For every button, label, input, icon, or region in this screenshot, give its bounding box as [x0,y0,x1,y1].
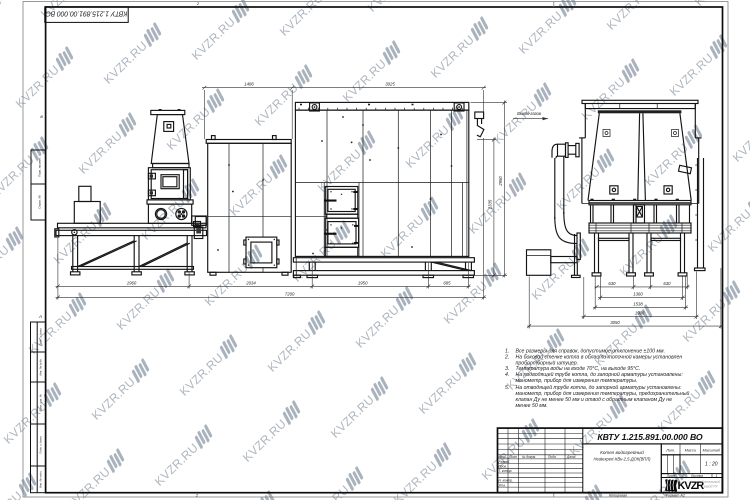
svg-text:манометр, прибор для измерения: манометр, прибор для измерения температу… [516,378,638,384]
svg-text:1538: 1538 [633,301,643,306]
svg-text:630: 630 [608,281,616,286]
svg-text:1906: 1906 [635,311,645,316]
svg-text:3025: 3025 [385,82,395,87]
svg-text:завод РУ: завод РУ [703,485,719,489]
svg-text:№ докум.: № докум. [522,455,536,459]
svg-text:1950: 1950 [358,280,368,285]
svg-text:Справ. №: Справ. № [38,194,42,208]
svg-text:Heatexpert-КВн-2,5-ДОК(ВПЛ): Heatexpert-КВн-2,5-ДОК(ВПЛ) [594,457,652,462]
svg-text:Изм.: Изм. [499,455,506,459]
svg-text:630: 630 [663,281,671,286]
svg-text:Подп.: Подп. [548,455,557,459]
svg-text:5.: 5. [505,385,509,391]
svg-text:Выход газов: Выход газов [517,111,542,116]
svg-text:Подп. и дата: Подп. и дата [39,328,43,346]
svg-text:1 : 20: 1 : 20 [705,462,718,468]
svg-text:Дата: Дата [566,455,576,459]
svg-text:Инв. № подл.: Инв. № подл. [39,470,43,488]
svg-text:1960: 1960 [127,280,137,285]
svg-text:Лист: Лист [508,455,518,459]
svg-text:2950: 2950 [498,176,503,187]
svg-text:1486: 1486 [244,82,254,87]
svg-text:Утв.: Утв. [499,483,506,487]
svg-text:2034: 2034 [245,280,256,285]
svg-text:Масштаб: Масштаб [703,449,721,453]
svg-text:Взам. инв. №: Взам. инв. № [39,394,43,411]
svg-text:Котел водогрейный: Котел водогрейный [600,449,644,455]
svg-text:КВТУ 1.215.891.00.000 ВО: КВТУ 1.215.891.00.000 ВО [45,10,127,17]
svg-text:Копировал: Копировал [609,493,627,497]
svg-text:КВТУ 1.215.891.00.000 ВО: КВТУ 1.215.891.00.000 ВО [597,432,702,442]
svg-text:1360: 1360 [633,292,643,297]
svg-text:Разраб.: Разраб. [499,460,511,464]
svg-text:Т. контр.: Т. контр. [499,469,513,473]
svg-text:2.: 2. [504,354,509,360]
svg-text:Подп. и дата: Подп. и дата [39,436,43,454]
svg-text:Перв. примен.: Перв. примен. [38,157,42,177]
svg-text:KVZR: KVZR [678,480,705,492]
svg-text:3050: 3050 [610,320,620,325]
svg-text:685: 685 [443,280,451,285]
svg-text:Лит.: Лит. [665,449,675,453]
svg-text:Инв. № дубл.: Инв. № дубл. [39,358,43,375]
svg-text:Масса: Масса [685,449,696,453]
svg-text:А: А [38,314,42,319]
svg-text:Формат А2: Формат А2 [665,493,685,497]
svg-text:2335: 2335 [488,199,493,210]
svg-text:менее 50 мм.: менее 50 мм. [516,403,548,409]
svg-text:Котельный: Котельный [702,480,721,484]
svg-text:Пров.: Пров. [499,465,508,469]
svg-text:Н. контр.: Н. контр. [499,479,513,483]
svg-text:4.: 4. [505,372,509,378]
svg-text:7200: 7200 [285,292,295,297]
